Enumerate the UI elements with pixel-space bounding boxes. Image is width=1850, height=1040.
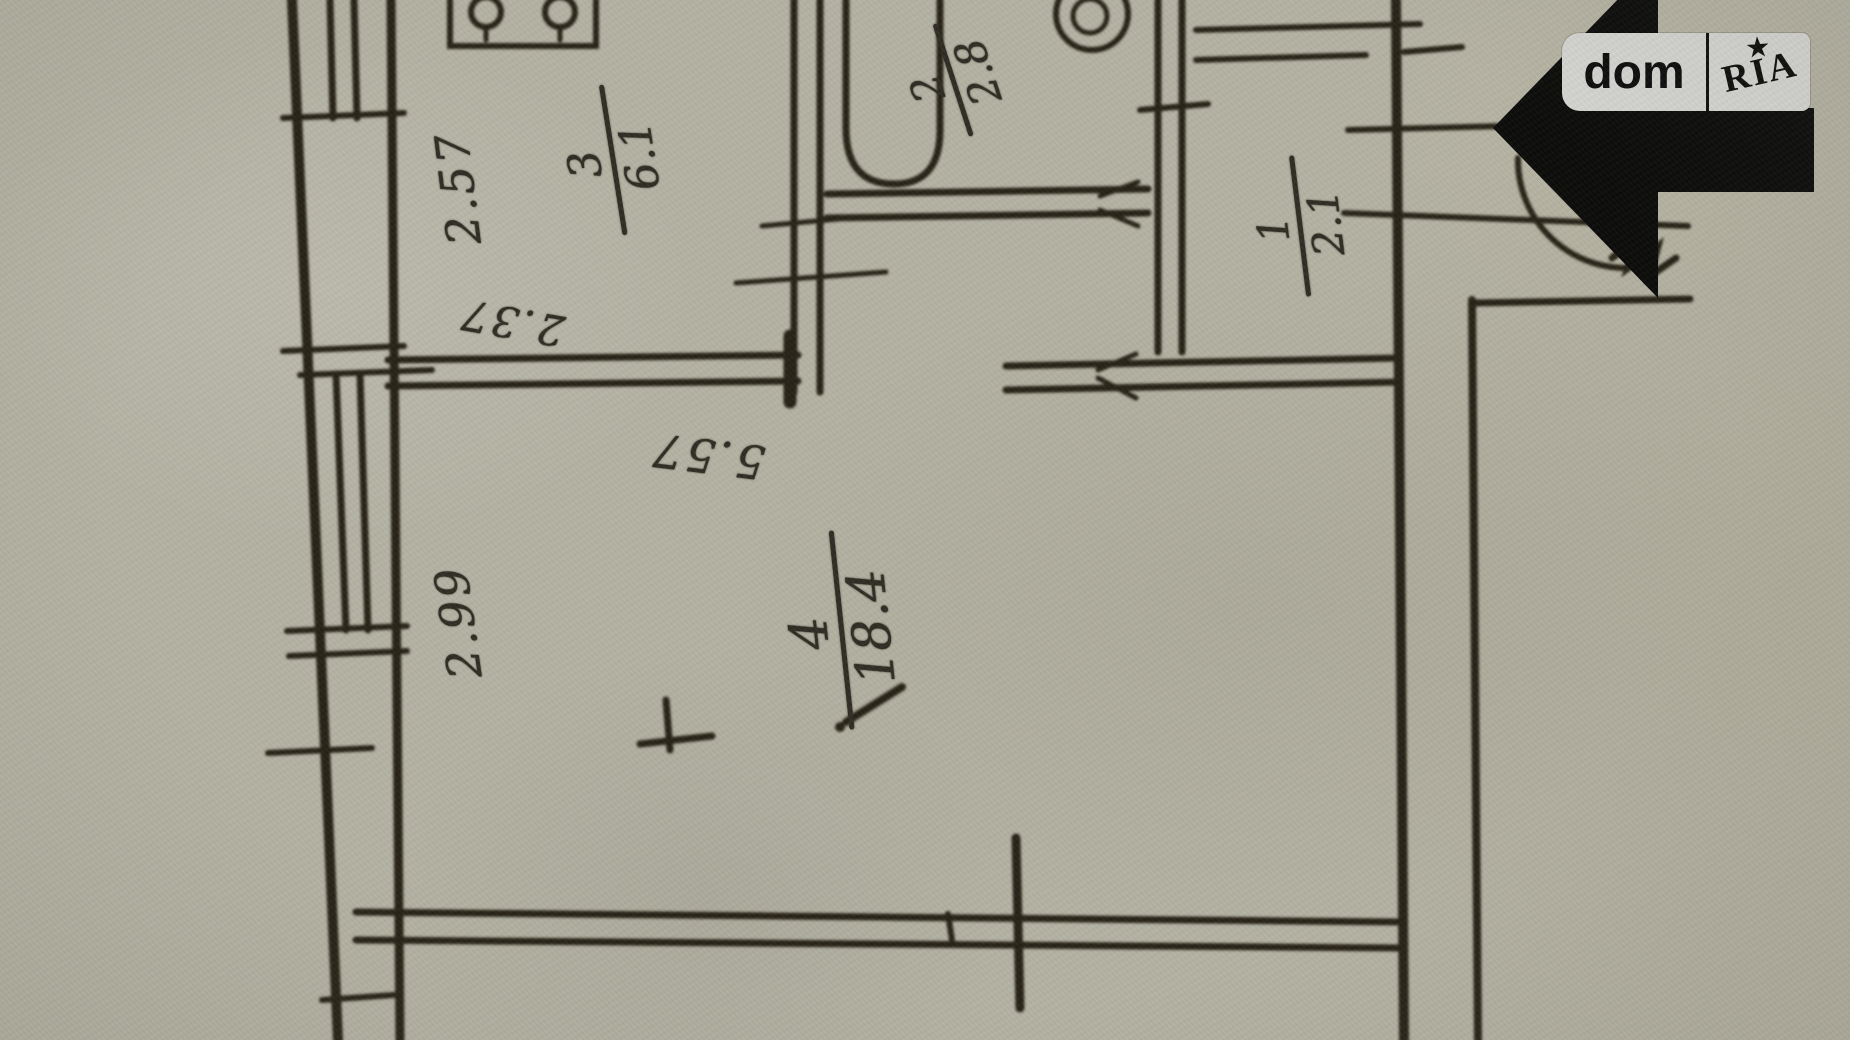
room-area: 2.1	[1302, 187, 1350, 258]
dimension-label-room-length: 5.57	[648, 426, 767, 486]
room-number: 1	[1252, 214, 1295, 245]
loggia-walls	[1472, 299, 1690, 1040]
hallway-top-wall	[1006, 354, 1400, 398]
dimension-label-kitchen-width: 2.57	[428, 128, 488, 247]
room-label-4: 4 18.4	[776, 525, 908, 736]
door-jamb-line	[1016, 838, 1020, 1008]
ria-logo-section: ★ RIA	[1709, 33, 1810, 111]
room-area: 18.4	[842, 567, 903, 687]
floor-plan-scan: 2.57 2.37 5.57 2.99 1 2.1 2 2.8 3 6.1 4 …	[0, 0, 1850, 1040]
room-number: 2	[905, 69, 951, 107]
room-area: 6.1	[614, 118, 666, 194]
room-number: 3	[563, 147, 609, 181]
window-symbol	[330, 0, 368, 630]
floor-plan-drawing	[0, 0, 1850, 1040]
dimension-label-room-width: 2.99	[427, 562, 488, 682]
star-icon: ★	[1745, 32, 1771, 64]
room-number: 4	[785, 614, 838, 652]
left-exterior-wall	[292, 0, 400, 1040]
stove-icon	[450, 0, 596, 46]
room-label-1: 1 2.1	[1245, 150, 1354, 302]
dom-logo-text: dom	[1562, 33, 1709, 111]
dom-ria-watermark: dom ★ RIA	[1562, 33, 1810, 111]
toilet-icon	[1056, 0, 1128, 50]
right-exterior-wall	[1396, 0, 1462, 1040]
kitchen-bottom-wall	[388, 336, 798, 402]
bottom-interior-wall	[356, 838, 1400, 1008]
window-sill-ticks	[268, 113, 432, 1000]
bathroom-bottom-wall	[827, 182, 1148, 226]
